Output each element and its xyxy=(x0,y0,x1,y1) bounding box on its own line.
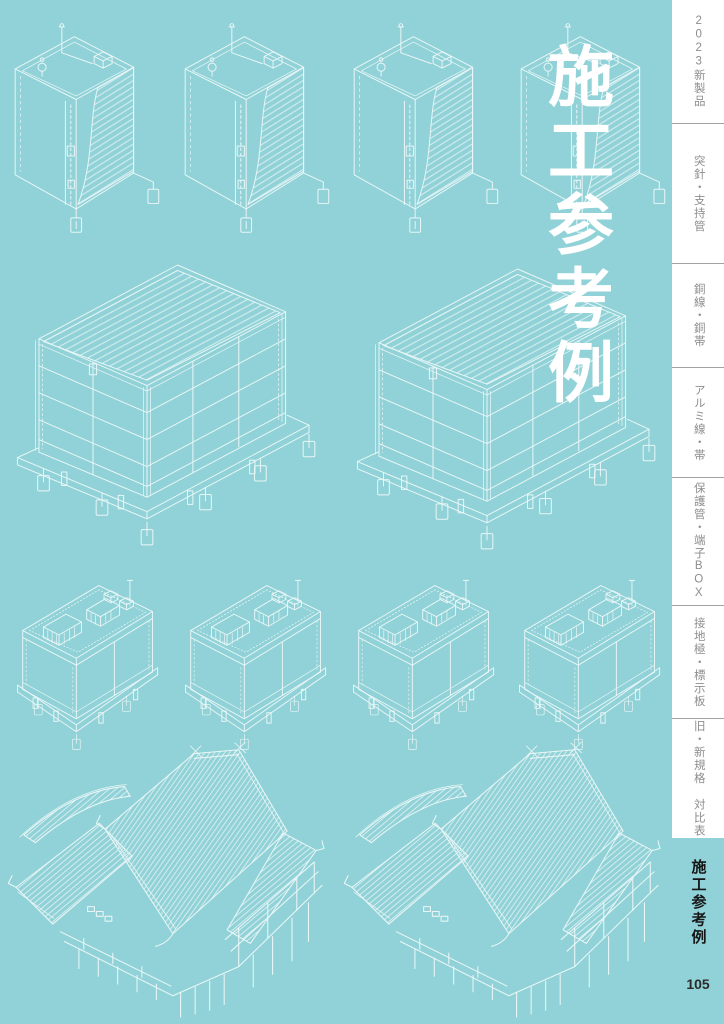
tab-copper-wire-strip[interactable]: 銅線・銅帯 xyxy=(672,263,724,367)
tab-rail: 2023新製品 突針・支持管 銅線・銅帯 アルミ線・帯 保護管・端子BOX 接地… xyxy=(672,0,724,838)
tab-label: 銅線・銅帯 xyxy=(692,283,704,348)
tab-protective-pipe-terminal-box[interactable]: 保護管・端子BOX xyxy=(672,477,724,605)
catalog-page: 施工参考例 2023新製品 突針・支持管 銅線・銅帯 アルミ線・帯 保護管・端子… xyxy=(0,0,724,1024)
illustration-canvas: 施工参考例 xyxy=(0,0,672,1024)
tab-ground-electrode-sign-plate[interactable]: 接地極・標示板 xyxy=(672,605,724,718)
tab-label: 突針・支持管 xyxy=(692,155,704,233)
tab-old-new-standard-comparison[interactable]: 旧・新規格 対比表 xyxy=(672,718,724,838)
active-tab-label: 施工参考例 xyxy=(691,859,706,947)
page-number: 105 xyxy=(672,976,724,992)
tab-2023-new-products[interactable]: 2023新製品 xyxy=(672,0,724,123)
plant-building-with-rooftop-equipment-icon xyxy=(17,580,659,749)
traditional-temple-building-icon xyxy=(8,742,660,1017)
tab-label: 旧・新規格 対比表 xyxy=(692,720,704,838)
tab-air-terminals-support-pipes[interactable]: 突針・支持管 xyxy=(672,123,724,263)
tab-construction-reference-active[interactable]: 施工参考例 xyxy=(672,848,724,958)
tab-aluminum-wire-strip[interactable]: アルミ線・帯 xyxy=(672,367,724,477)
tab-label: アルミ線・帯 xyxy=(692,384,704,462)
tab-label: 保護管・端子BOX xyxy=(692,482,704,601)
tab-label: 接地極・標示板 xyxy=(692,617,704,708)
tab-label: 2023新製品 xyxy=(692,15,704,108)
page-title: 施工参考例 xyxy=(543,42,609,422)
